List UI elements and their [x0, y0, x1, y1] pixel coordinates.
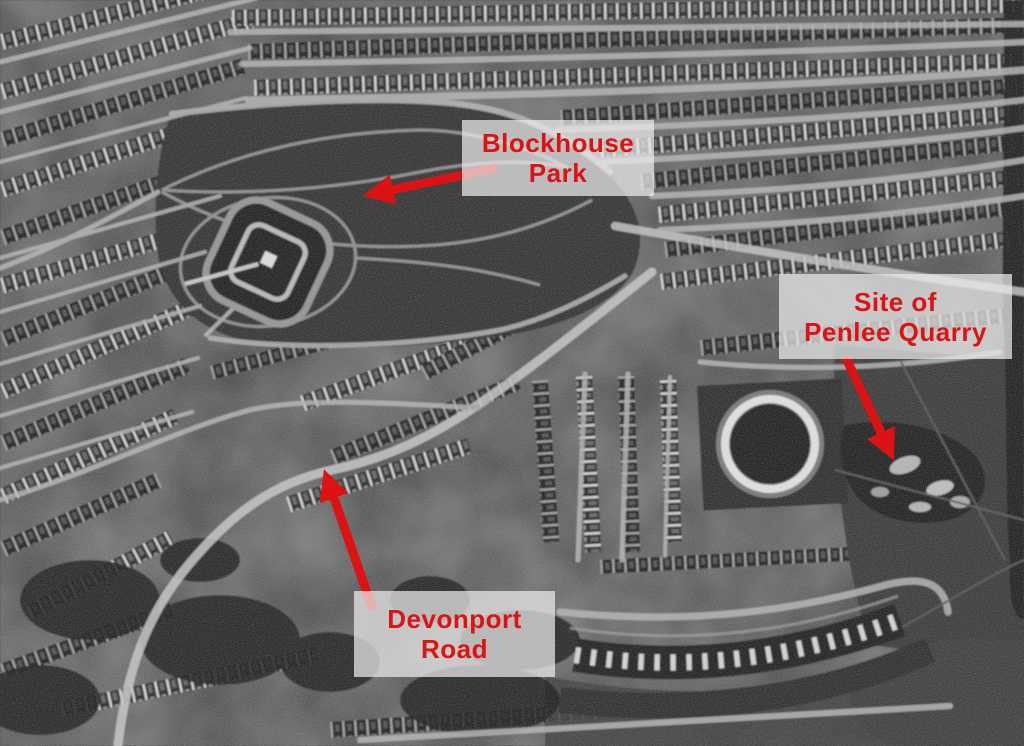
blockhouse-park-label-line1: Blockhouse [462, 128, 654, 158]
penlee-quarry-label: Site of Penlee Quarry [779, 274, 1012, 359]
devonport-road-label-line1: Devonport [354, 604, 555, 634]
annotated-aerial-photo: Blockhouse Park Site of Penlee Quarry De… [0, 0, 1024, 746]
penlee-quarry-label-line1: Site of [779, 287, 1012, 317]
penlee-quarry-label-line2: Penlee Quarry [779, 317, 1012, 347]
blockhouse-park-label-line2: Park [462, 158, 654, 188]
devonport-road-label-line2: Road [354, 634, 555, 664]
devonport-road-label: Devonport Road [354, 591, 555, 677]
blockhouse-park-label: Blockhouse Park [462, 120, 654, 196]
